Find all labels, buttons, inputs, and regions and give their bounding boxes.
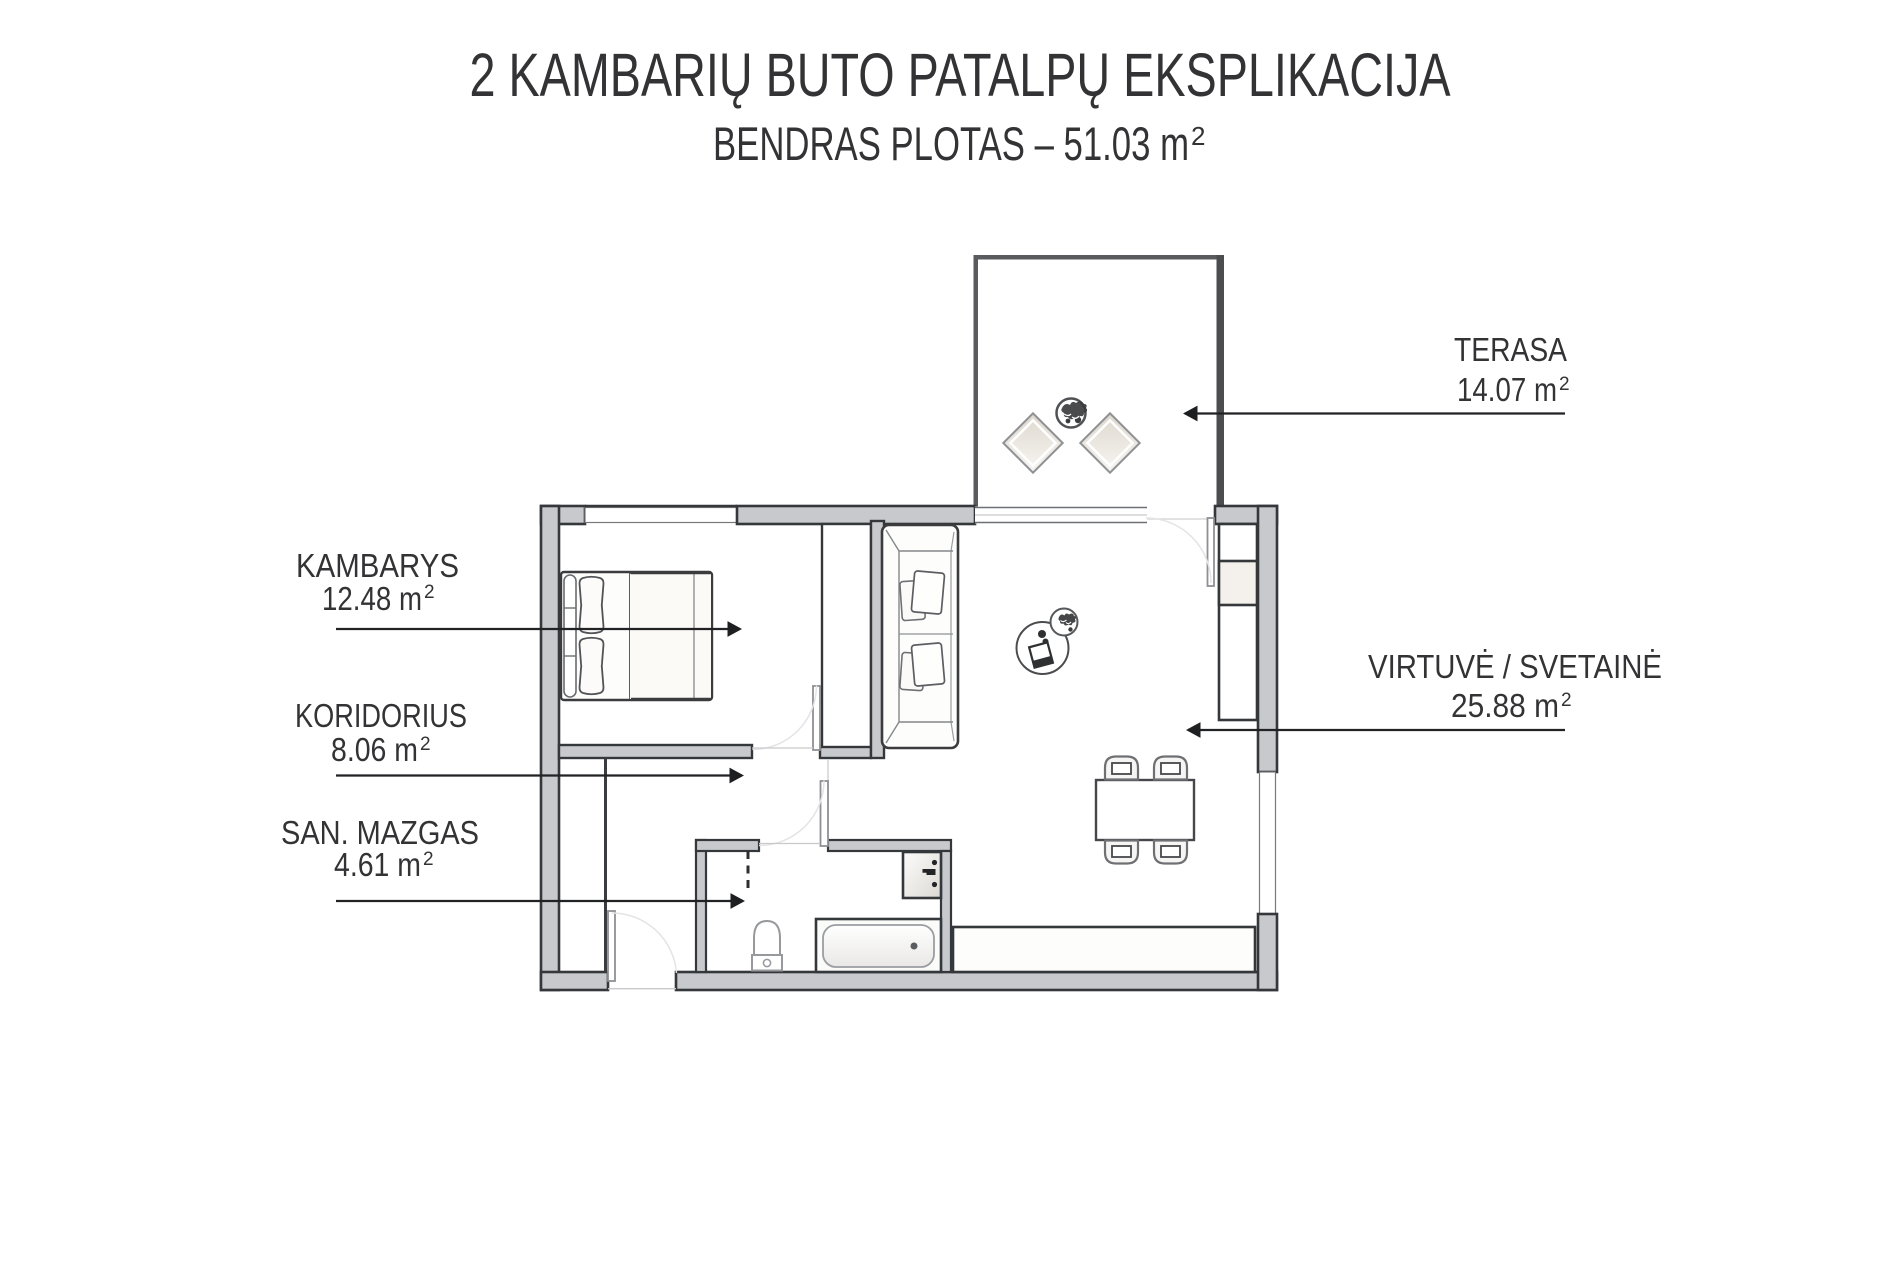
svg-text:VIRTUVĖ / SVETAINĖ: VIRTUVĖ / SVETAINĖ bbox=[1368, 648, 1662, 685]
svg-text:TERASA: TERASA bbox=[1454, 331, 1567, 368]
svg-text:12.48 m: 12.48 m bbox=[322, 580, 422, 617]
svg-text:2: 2 bbox=[424, 582, 435, 603]
svg-text:8.06 m: 8.06 m bbox=[331, 731, 418, 768]
svg-text:KORIDORIUS: KORIDORIUS bbox=[295, 697, 467, 734]
svg-text:4.61 m: 4.61 m bbox=[334, 846, 421, 883]
svg-text:2: 2 bbox=[1191, 121, 1205, 151]
svg-text:2: 2 bbox=[423, 849, 434, 870]
svg-text:BENDRAS PLOTAS – 51.03 m: BENDRAS PLOTAS – 51.03 m bbox=[713, 117, 1189, 170]
svg-text:14.07 m: 14.07 m bbox=[1457, 371, 1557, 408]
svg-text:2: 2 bbox=[1559, 374, 1570, 395]
svg-text:KAMBARYS: KAMBARYS bbox=[296, 547, 459, 584]
svg-text:2: 2 bbox=[1561, 690, 1572, 711]
svg-text:2: 2 bbox=[420, 734, 431, 755]
svg-text:2 KAMBARIŲ BUTO PATALPŲ EKSPLI: 2 KAMBARIŲ BUTO PATALPŲ EKSPLIKACIJA bbox=[470, 41, 1451, 109]
svg-text:25.88 m: 25.88 m bbox=[1451, 687, 1559, 724]
